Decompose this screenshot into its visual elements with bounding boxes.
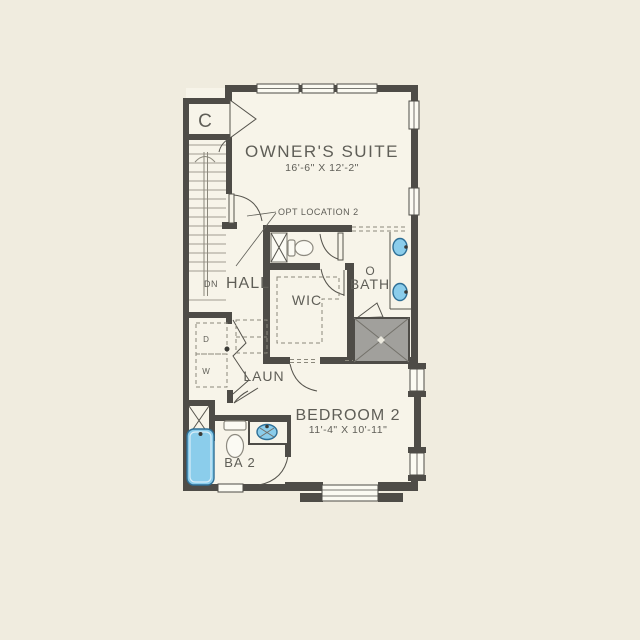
wic-label: WIC	[292, 292, 322, 308]
washer-label: W	[202, 367, 210, 376]
window-bath2	[218, 484, 243, 492]
dryer-label: D	[203, 335, 209, 344]
hall-label: HALL	[226, 275, 270, 292]
suite-door-leaf	[229, 194, 234, 223]
toilet-tank-bath2	[224, 421, 246, 430]
owners-suite-label: OWNER'S SUITE	[245, 142, 399, 161]
opt-location-label: OPT LOCATION 2	[278, 207, 359, 217]
bathtub	[187, 429, 214, 485]
laundry-label: LAUN	[243, 368, 284, 384]
bedroom2-dims: 11'-4" X 10'-11"	[309, 424, 388, 436]
bath2-label: BA 2	[224, 455, 255, 470]
laundry-door-knob	[225, 347, 230, 352]
floor-plan: C OWNER'S SUITE 16'-6" X 12'-2" OPT LOCA…	[0, 0, 640, 640]
tub-faucet	[199, 432, 203, 436]
stairs-dn-label: DN	[204, 279, 218, 289]
toilet-bowl-wc	[295, 241, 313, 256]
water-closet-door-leaf	[338, 233, 343, 260]
owners-suite-dims: 16'-6" X 12'-2"	[285, 162, 359, 174]
page: { "labels": { "closet": "C", "owners_sui…	[0, 0, 640, 640]
obath-label-bath: BATH	[350, 276, 390, 292]
closet-label: C	[198, 111, 214, 132]
bedroom2-label: BEDROOM 2	[295, 407, 400, 424]
toilet-tank-wc	[288, 240, 295, 256]
window-bedroom-bay	[322, 485, 378, 501]
